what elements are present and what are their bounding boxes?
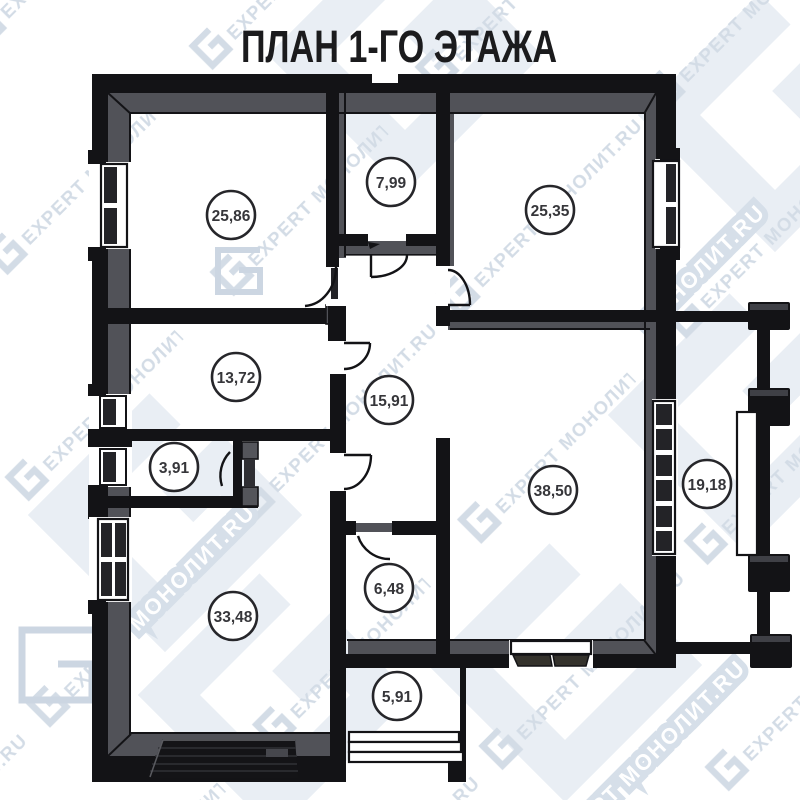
svg-text:ПЛАН 1-ГО ЭТАЖА: ПЛАН 1-ГО ЭТАЖА [241, 21, 557, 72]
svg-text:7,99: 7,99 [376, 175, 407, 192]
svg-text:19,18: 19,18 [688, 477, 727, 494]
svg-text:25,86: 25,86 [212, 208, 251, 225]
svg-text:3,91: 3,91 [159, 460, 190, 477]
svg-text:15,91: 15,91 [370, 393, 409, 410]
svg-text:33,48: 33,48 [214, 609, 253, 626]
svg-text:6,48: 6,48 [374, 581, 405, 598]
svg-text:25,35: 25,35 [531, 203, 570, 220]
svg-text:38,50: 38,50 [534, 483, 573, 500]
svg-text:5,91: 5,91 [382, 689, 413, 706]
svg-text:13,72: 13,72 [217, 370, 256, 387]
